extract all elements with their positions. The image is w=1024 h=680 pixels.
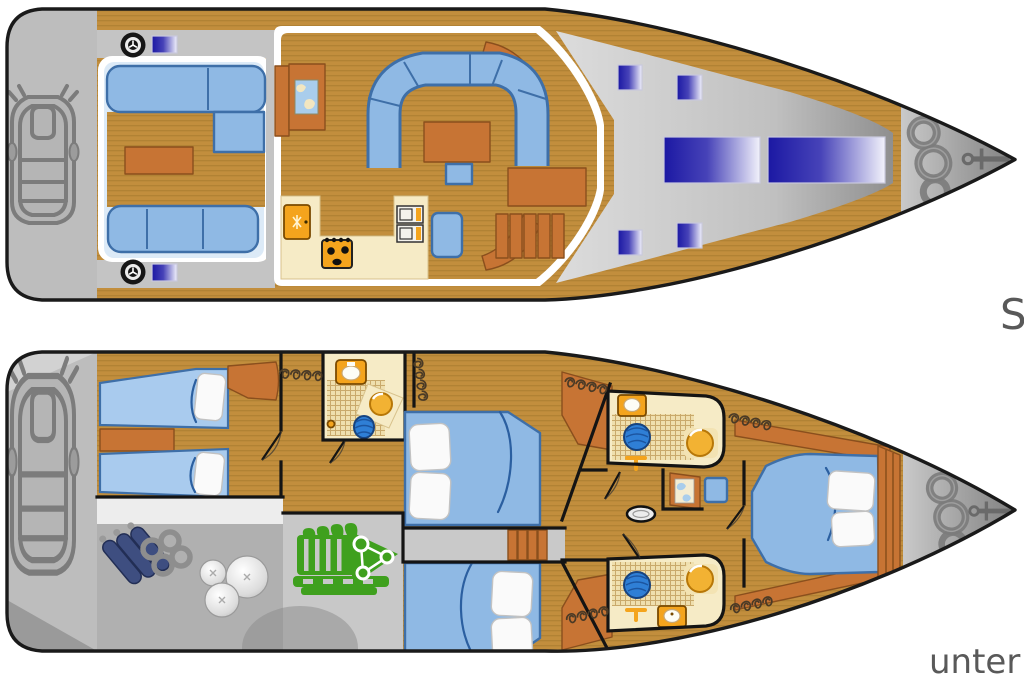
head-aft xyxy=(323,352,405,440)
cockpit-table xyxy=(125,147,193,174)
galley-seat xyxy=(432,213,462,257)
sink-bowl-icon xyxy=(370,393,392,415)
fridge-icon xyxy=(284,205,310,239)
pillow xyxy=(831,511,875,547)
dinghy-icon xyxy=(8,86,79,223)
cockpit-bench-fwd xyxy=(107,66,265,112)
sink-bowl-icon xyxy=(687,430,713,456)
winch-icon xyxy=(121,260,146,285)
sideboard xyxy=(508,168,586,206)
pillow xyxy=(193,452,225,497)
deck-hatch-icon xyxy=(618,230,642,255)
companionway-stairs xyxy=(496,214,564,258)
toilet-icon xyxy=(336,360,366,384)
salon-stool xyxy=(446,164,472,184)
pillow xyxy=(827,470,876,511)
winch-icon xyxy=(121,33,146,58)
forward-bulkhead xyxy=(878,446,900,578)
nav-seat xyxy=(705,478,727,502)
cockpit xyxy=(98,56,275,262)
dinghy-icon-lower xyxy=(8,359,79,573)
lower-deck-plan xyxy=(0,343,1024,680)
upper-deck-label: S xyxy=(1000,290,1024,339)
nav-chart-table xyxy=(275,64,325,136)
cleat-icon xyxy=(152,36,177,53)
cockpit-bench-aft xyxy=(108,206,258,252)
skylight-hatch xyxy=(664,137,760,183)
deck-hatch-icon xyxy=(618,65,642,90)
lower-deck-label: unter D xyxy=(929,642,1024,680)
berth-board xyxy=(100,429,174,451)
upper-deck-plan xyxy=(0,0,1024,310)
yacht-deck-plans: S unter D xyxy=(0,0,1024,680)
pillow xyxy=(409,472,451,520)
faucet-icon xyxy=(328,421,335,428)
deck-hatch-icon xyxy=(677,223,702,248)
walkway-strip xyxy=(97,498,283,524)
pillow xyxy=(491,617,533,663)
deck-hatch-icon xyxy=(677,75,702,100)
salon xyxy=(274,26,604,286)
companionway-stairs-lower xyxy=(508,530,547,560)
sink-bowl-icon xyxy=(687,566,713,592)
toilet-icon xyxy=(618,395,646,416)
pillow xyxy=(491,571,533,617)
skylight-hatch xyxy=(768,137,885,183)
cleat-icon xyxy=(152,264,177,281)
pillow xyxy=(409,423,451,471)
cockpit-bench-side xyxy=(214,112,264,152)
mast-foot-icon xyxy=(627,507,655,522)
salon-table xyxy=(424,122,490,162)
head-forward-port xyxy=(608,391,724,469)
stove-icon xyxy=(322,238,352,268)
toilet-icon xyxy=(658,606,686,627)
head-forward-starboard xyxy=(608,555,724,631)
pillow xyxy=(194,373,227,422)
